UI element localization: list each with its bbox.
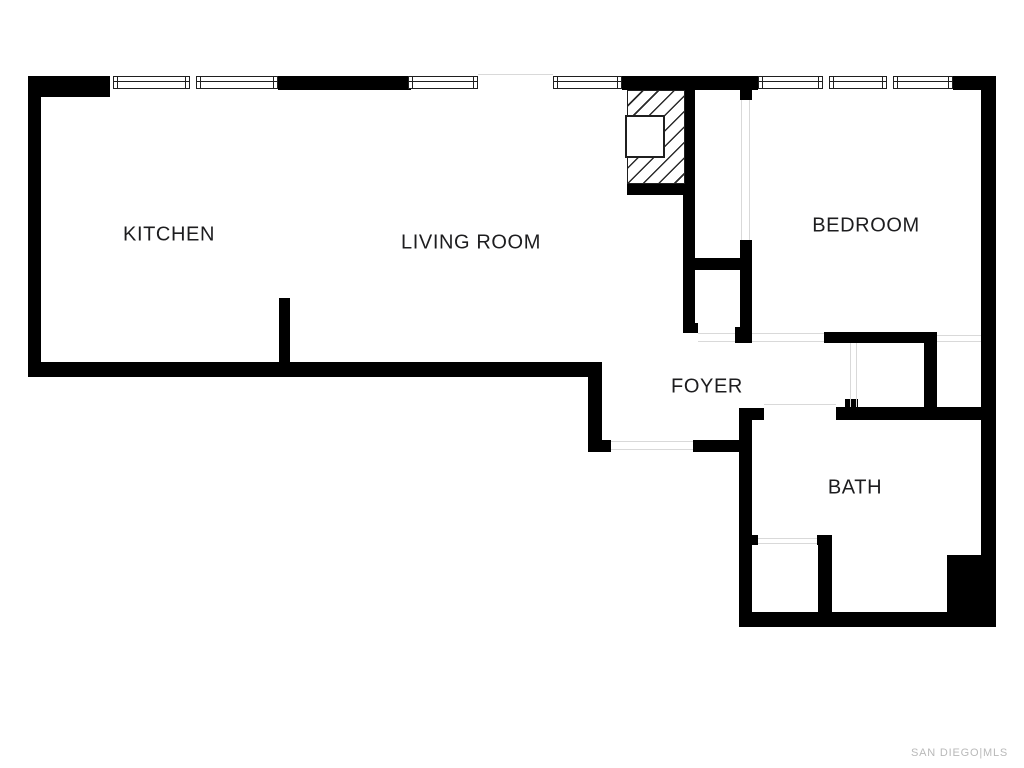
window-jamb: [557, 77, 558, 88]
window-center-line: [894, 81, 952, 82]
room-label-bedroom: BEDROOM: [812, 215, 920, 238]
door-opening-line: [937, 335, 981, 336]
window-jamb: [897, 77, 898, 88]
wall-segment: [817, 535, 832, 545]
room-label-kitchen: KITCHEN: [123, 224, 215, 247]
door-opening-line: [749, 100, 750, 240]
window-jamb: [882, 77, 883, 88]
window-jamb: [617, 77, 618, 88]
door-opening-line: [850, 343, 851, 407]
window-jamb: [273, 77, 274, 88]
door-opening-line: [478, 74, 553, 75]
wall-segment: [739, 408, 752, 627]
door-opening-line: [698, 333, 735, 334]
door-opening-line: [937, 341, 981, 342]
window-jamb: [833, 77, 834, 88]
wall-segment: [824, 332, 937, 343]
window-jamb: [117, 77, 118, 88]
room-label-living-room: LIVING ROOM: [401, 232, 541, 255]
wall-segment: [588, 440, 611, 452]
wall-segment: [28, 362, 602, 377]
door-opening-line: [758, 543, 817, 544]
door-opening-line: [752, 333, 824, 334]
wall-segment: [947, 555, 996, 625]
wall-segment: [278, 76, 411, 90]
wall-segment: [818, 545, 832, 613]
window-jamb: [200, 77, 201, 88]
wall-segment: [622, 76, 758, 90]
door-opening-line: [611, 449, 693, 450]
wall-segment: [740, 90, 752, 100]
window-pane: [113, 76, 190, 89]
window-pane: [408, 76, 478, 89]
mls-watermark: SAN DIEGO|MLS: [911, 747, 1008, 759]
window-center-line: [114, 81, 189, 82]
window-jamb: [473, 77, 474, 88]
wall-segment: [981, 76, 996, 625]
window-pane: [758, 76, 823, 89]
window-center-line: [759, 81, 822, 82]
window-center-line: [409, 81, 477, 82]
window-jamb: [948, 77, 949, 88]
chimney-flue-box: [625, 115, 665, 158]
window-center-line: [830, 81, 886, 82]
window-jamb: [185, 77, 186, 88]
wall-segment: [627, 184, 685, 195]
window-pane: [553, 76, 622, 89]
wall-segment: [735, 327, 752, 343]
door-opening-line: [611, 441, 693, 442]
wall-segment: [28, 76, 41, 377]
door-opening-line: [741, 100, 742, 240]
window-jamb: [412, 77, 413, 88]
window-jamb: [818, 77, 819, 88]
wall-segment: [683, 323, 698, 333]
wall-segment: [750, 535, 758, 545]
door-opening-line: [856, 343, 857, 407]
window-jamb: [762, 77, 763, 88]
door-opening-line: [752, 341, 824, 342]
door-opening-line: [764, 404, 836, 405]
window-pane: [893, 76, 953, 89]
window-pane: [829, 76, 887, 89]
window-center-line: [554, 81, 621, 82]
wall-segment: [924, 343, 937, 415]
wall-segment: [279, 298, 290, 363]
door-opening-line: [698, 341, 735, 342]
floor-plan: SAN DIEGO|MLS KITCHENLIVING ROOMBEDROOMF…: [0, 0, 1024, 768]
door-opening-line: [758, 538, 817, 539]
window-pane: [196, 76, 278, 89]
wall-segment: [739, 408, 764, 420]
window-center-line: [197, 81, 277, 82]
wall-segment: [836, 407, 996, 420]
room-label-bath: BATH: [828, 477, 882, 500]
room-label-foyer: FOYER: [671, 376, 743, 399]
